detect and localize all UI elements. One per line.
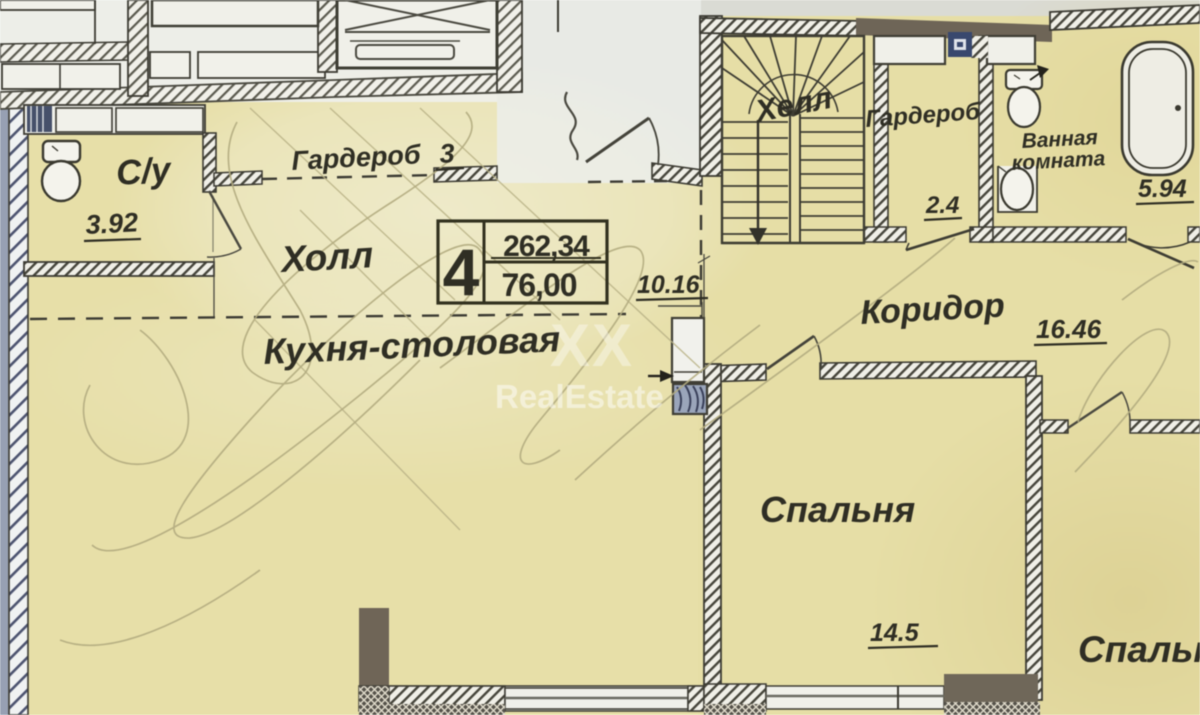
svg-text:С/у: С/у — [115, 150, 174, 193]
svg-text:3: 3 — [439, 138, 456, 169]
svg-text:2.4: 2.4 — [925, 192, 959, 219]
svg-text:Спальня: Спальня — [1078, 629, 1200, 670]
svg-text:76,00: 76,00 — [501, 267, 576, 303]
svg-text:RealEstate: RealEstate — [495, 378, 664, 415]
svg-text:10.16: 10.16 — [637, 271, 701, 299]
svg-text:Спальня: Спальня — [760, 489, 915, 530]
svg-text:Коридор: Коридор — [859, 286, 1005, 332]
svg-text:Холл: Холл — [278, 234, 374, 280]
svg-text:5.94: 5.94 — [1138, 175, 1187, 203]
svg-text:комната: комната — [1011, 147, 1106, 175]
svg-text:14.5: 14.5 — [870, 619, 920, 647]
svg-text:XX: XX — [550, 312, 634, 379]
svg-text:4: 4 — [443, 235, 480, 309]
svg-text:16.46: 16.46 — [1036, 314, 1102, 344]
svg-text:3.92: 3.92 — [85, 207, 139, 240]
